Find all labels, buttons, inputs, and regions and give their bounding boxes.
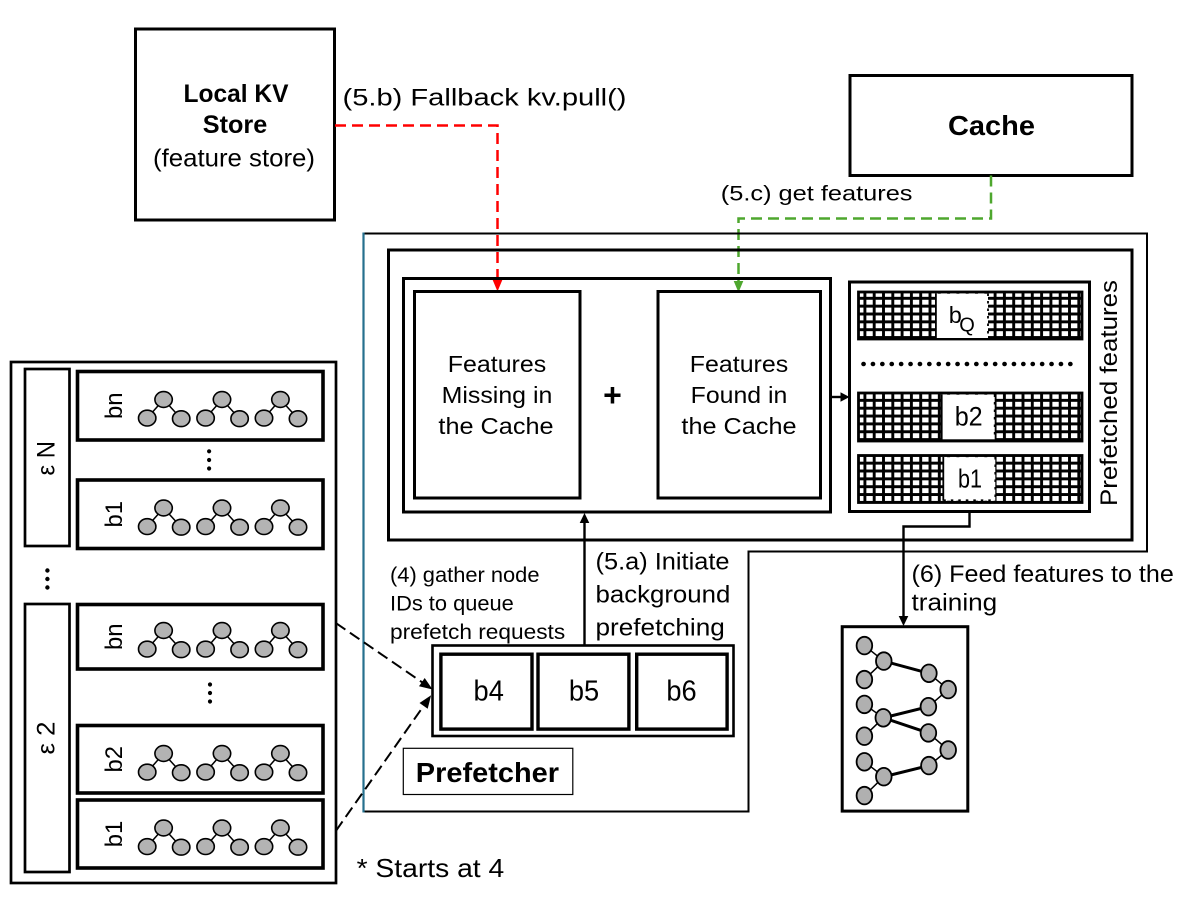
svg-text:b1: b1 <box>101 501 128 528</box>
svg-text:+: + <box>603 377 622 413</box>
svg-text:the Cache: the Cache <box>681 413 796 439</box>
svg-text:b1: b1 <box>958 463 982 493</box>
svg-text:(5.a) Initiate: (5.a) Initiate <box>596 549 730 576</box>
svg-text:Prefetched features: Prefetched features <box>1096 280 1123 506</box>
svg-text:ε N: ε N <box>33 441 61 476</box>
svg-text:b1: b1 <box>101 821 128 848</box>
svg-text:bn: bn <box>101 392 128 419</box>
svg-text:Store: Store <box>203 111 268 139</box>
svg-text:the Cache: the Cache <box>438 413 553 439</box>
svg-text:Prefetcher: Prefetcher <box>416 757 559 788</box>
svg-text:Missing in: Missing in <box>442 382 553 408</box>
svg-text:(5.c) get features: (5.c) get features <box>721 183 913 206</box>
svg-text:bn: bn <box>101 623 128 650</box>
svg-text:IDs to queue: IDs to queue <box>390 592 514 616</box>
svg-text:Cache: Cache <box>948 110 1035 141</box>
svg-text:ε 2: ε 2 <box>33 722 61 755</box>
svg-text:Features: Features <box>690 351 788 377</box>
svg-text:* Starts at 4: * Starts at 4 <box>357 853 505 883</box>
svg-text:b2: b2 <box>101 746 128 773</box>
svg-text:prefetch requests: prefetch requests <box>390 620 565 644</box>
svg-text:prefetching: prefetching <box>596 615 725 642</box>
svg-text:(5.b) Fallback kv.pull(): (5.b) Fallback kv.pull() <box>343 85 627 112</box>
svg-text:b2: b2 <box>955 401 983 431</box>
svg-text:Found in: Found in <box>691 382 788 408</box>
svg-text:b4: b4 <box>474 675 504 707</box>
svg-text:(feature store): (feature store) <box>153 145 315 173</box>
svg-text:Local KV: Local KV <box>184 80 289 108</box>
svg-text:background: background <box>596 582 731 609</box>
svg-text:(4) gather node: (4) gather node <box>390 563 540 587</box>
svg-text:b6: b6 <box>666 675 696 707</box>
svg-text:training: training <box>912 589 998 616</box>
svg-text:Q: Q <box>959 314 975 336</box>
svg-text:b5: b5 <box>569 675 599 707</box>
svg-text:Features: Features <box>448 351 546 377</box>
svg-text:(6) Feed features to the: (6) Feed features to the <box>912 561 1174 588</box>
